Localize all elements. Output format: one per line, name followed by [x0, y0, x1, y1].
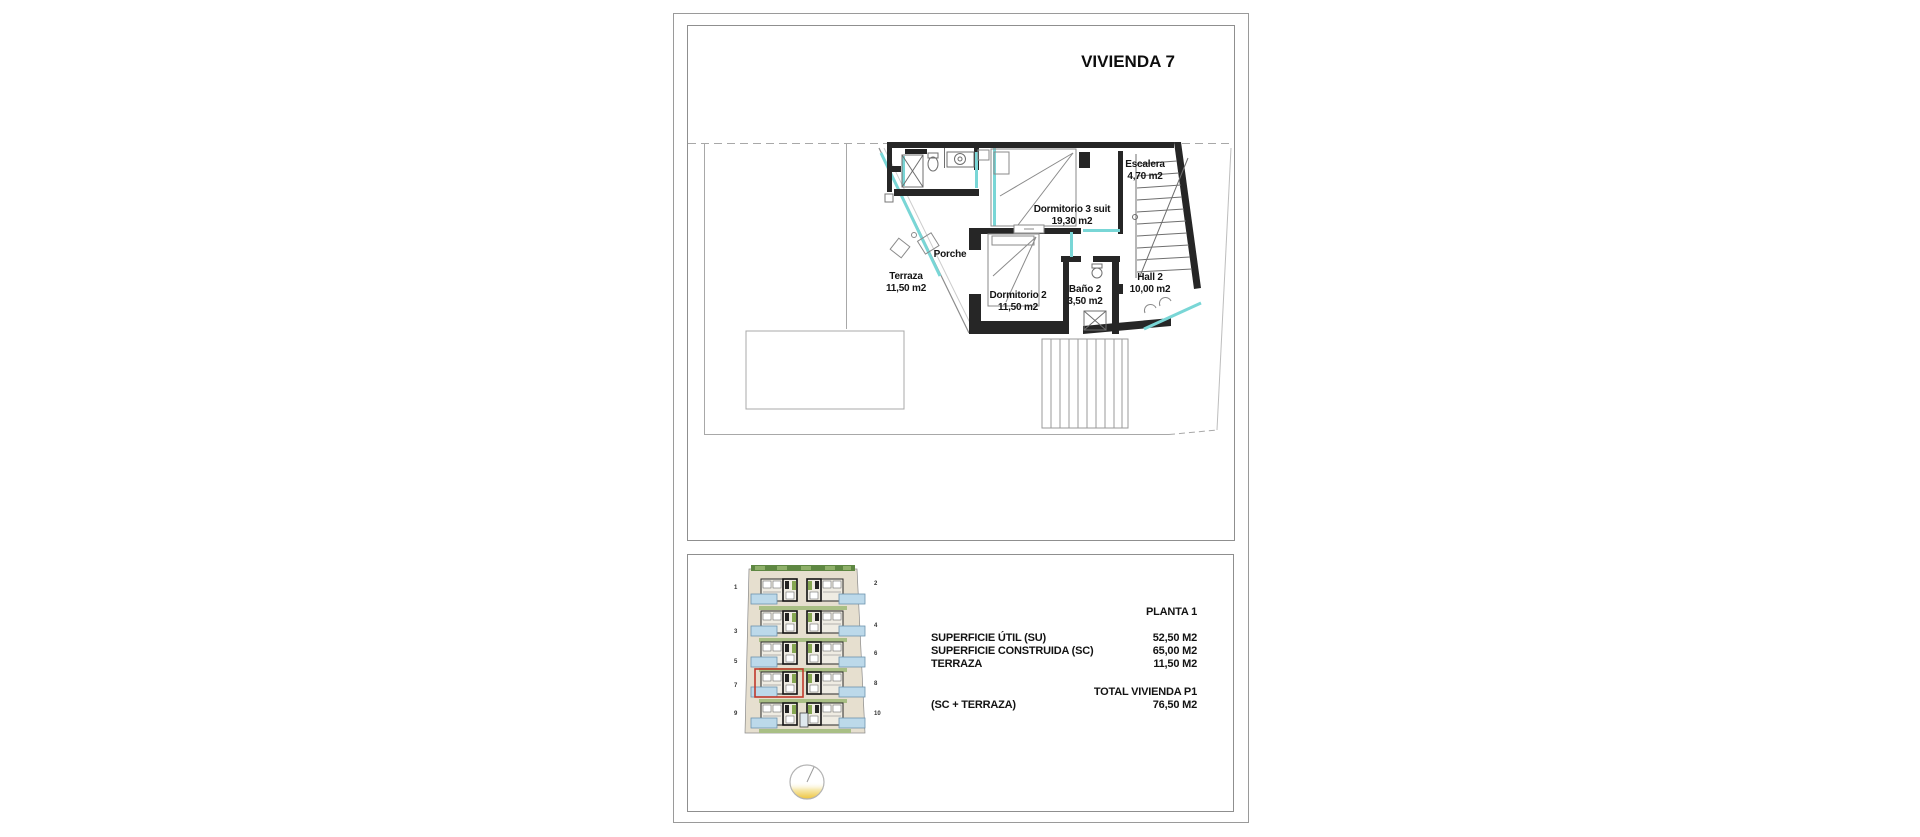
unit-number: 6	[874, 651, 877, 657]
floor-plan-panel: VIVIENDA 7 Escalera 4,70 m2 Dormitorio 3…	[687, 25, 1235, 541]
room-label-terraza: Terraza 11,50 m2	[886, 271, 926, 294]
room-label-hall2: Hall 2 10,00 m2	[1130, 272, 1171, 295]
compass-icon	[785, 760, 829, 804]
summary-row-value: 11,50 M2	[1153, 658, 1197, 670]
unit-number: 5	[734, 659, 737, 665]
room-label-dormitorio3: Dormitorio 3 suit 19,30 m2	[1034, 204, 1111, 227]
summary-panel: 1 3 5 7 9 2 4 6 8 10 PLANTA 1 SUPERFICIE…	[687, 554, 1234, 812]
hall-furniture	[1144, 297, 1171, 313]
summary-row-value: 65,00 M2	[1153, 645, 1197, 657]
unit-number: 3	[734, 629, 737, 635]
unit-number: 4	[874, 623, 877, 629]
floor-label: PLANTA 1	[1146, 606, 1197, 618]
room-label-porche: Porche	[934, 249, 967, 261]
unit-number: 8	[874, 681, 877, 687]
terrace-edge	[879, 148, 973, 333]
unit-number: 7	[734, 683, 737, 689]
plan-title: VIVIENDA 7	[1058, 52, 1198, 72]
total-label: TOTAL VIVIENDA P1	[1094, 686, 1197, 698]
summary-row-label: SUPERFICIE CONSTRUIDA (SC)	[931, 645, 1093, 657]
unit-number: 1	[734, 585, 737, 591]
summary-row-label: TERRAZA	[931, 658, 982, 670]
room-label-dormitorio2: Dormitorio 2 11,50 m2	[989, 290, 1046, 313]
total-value: 76,50 M2	[1153, 699, 1197, 711]
unit-number: 10	[874, 711, 881, 717]
room-label-bano2: Baño 2 3,50 m2	[1067, 284, 1102, 307]
site-center-object	[800, 713, 808, 727]
pergola	[1042, 339, 1128, 428]
unit-number: 9	[734, 711, 737, 717]
room-label-escalera: Escalera 4,70 m2	[1125, 159, 1165, 182]
unit-number: 2	[874, 581, 877, 587]
total-sublabel: (SC + TERRAZA)	[931, 699, 1016, 711]
site-plan-thumbnail	[743, 563, 875, 747]
summary-row-value: 52,50 M2	[1153, 632, 1197, 644]
bathroom-fixtures	[902, 148, 974, 187]
summary-row-label: SUPERFICIE ÚTIL (SU)	[931, 632, 1046, 644]
